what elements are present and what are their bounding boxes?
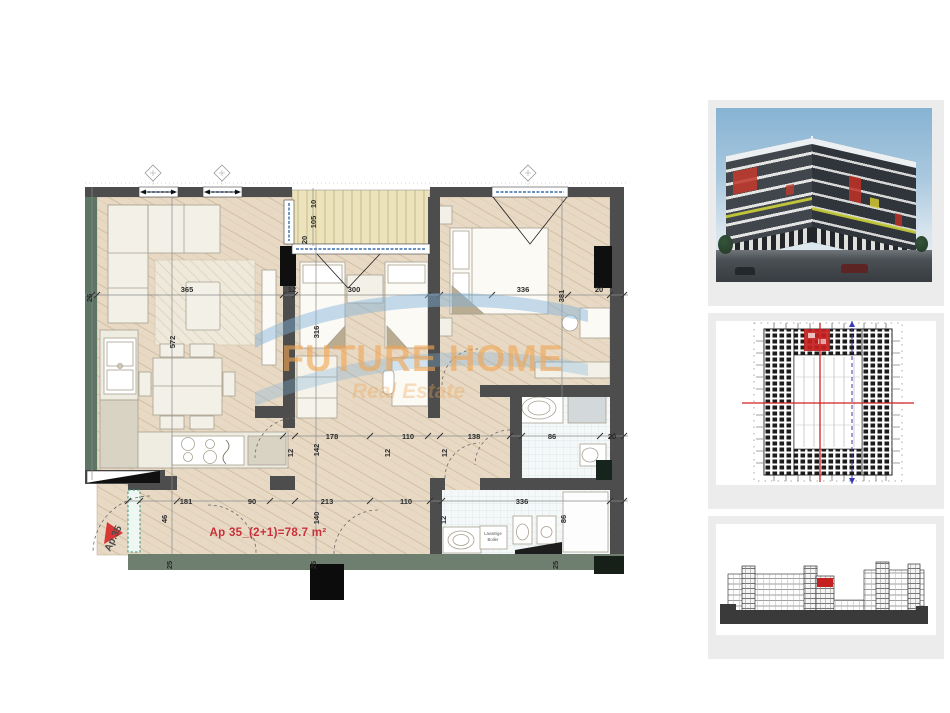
red-accent-panel — [733, 166, 757, 194]
left-wall — [85, 197, 97, 470]
building-3d-render-image — [716, 108, 932, 282]
dimension-label: 140 — [312, 512, 321, 525]
dimension-label: 20 — [595, 285, 603, 294]
bottom-wall — [128, 554, 624, 570]
right-building-block — [864, 562, 924, 614]
column — [594, 246, 612, 288]
dimension-label: 138 — [468, 432, 481, 441]
apartment-area-label: Ap 35_(2+1)=78.7 m² — [210, 527, 327, 539]
window-tag-diamonds — [145, 165, 536, 187]
dimension-label: 10 — [309, 200, 318, 208]
dimension-label: 12 — [288, 285, 296, 294]
dimension-label: 572 — [168, 336, 177, 349]
dimension-label: 178 — [326, 432, 339, 441]
roof-parapet — [726, 138, 812, 162]
car — [735, 267, 755, 275]
dimension-label: 25 — [309, 561, 318, 569]
dimension-label: 90 — [248, 497, 256, 506]
dimension-label: 12 — [286, 449, 295, 457]
floor-plan: Ap.35 2536512300336381205723161010520178… — [80, 160, 650, 620]
dimension-label: 381 — [557, 290, 566, 303]
street — [716, 250, 932, 282]
left-building-block — [728, 566, 864, 614]
building-left-facade — [726, 138, 812, 260]
highlighted-unit — [804, 329, 830, 351]
dimension-label: 336 — [516, 497, 529, 506]
wall-kids-master — [428, 197, 440, 418]
column — [594, 556, 624, 574]
dimension-label: 86 — [548, 432, 556, 441]
dimension-label: 365 — [181, 285, 194, 294]
boiler-label-line1: Lavatrige — [484, 531, 502, 536]
site-key-plan-drawing — [716, 321, 936, 485]
roof-parapet — [812, 138, 916, 168]
yellow-accent-panel — [870, 197, 878, 208]
building-right-facade — [812, 138, 916, 266]
dimension-label: 110 — [400, 497, 412, 506]
red-accent-panel — [849, 176, 860, 204]
dimension-label: 20 — [300, 236, 309, 244]
master-dresser — [535, 362, 610, 378]
kids-bed-right — [385, 262, 428, 348]
dimension-label: 12 — [440, 449, 449, 457]
dimension-label: 181 — [180, 497, 193, 506]
dimension-label: 25 — [85, 294, 94, 302]
building-elevation-drawing — [716, 524, 936, 635]
red-accent-panel — [895, 213, 902, 226]
dimension-label: 86 — [559, 515, 568, 523]
dimension-label: 110 — [402, 432, 414, 441]
thumbnail-building-render[interactable] — [708, 100, 944, 306]
right-wall — [610, 197, 624, 570]
dimension-label: 142 — [312, 444, 321, 457]
floor-plan-drawing: Ap.35 2536512300336381205723161010520178… — [80, 160, 650, 620]
boiler-label-line2: Boiler — [488, 537, 500, 542]
stove — [172, 436, 244, 465]
dimension-label: 316 — [312, 326, 321, 339]
thumbnail-elevation[interactable] — [708, 516, 944, 659]
dimension-label: 213 — [321, 497, 334, 506]
window-living-1 — [139, 187, 178, 197]
listing-image: Ap.35 2536512300336381205723161010520178… — [0, 0, 950, 713]
dimension-label: 336 — [517, 285, 530, 294]
dimension-label: 25 — [165, 561, 174, 569]
window-living-2 — [203, 187, 242, 197]
car — [841, 264, 868, 273]
dimension-label: 20 — [608, 432, 616, 441]
dimension-label: 300 — [348, 285, 361, 294]
dimension-label: 25 — [551, 561, 560, 569]
master-bed — [450, 228, 548, 314]
red-accent-panel — [786, 183, 794, 195]
kids-wardrobe — [297, 356, 337, 418]
wall-master-bath — [480, 385, 624, 397]
highlighted-unit — [817, 578, 833, 587]
dimension-label: 12 — [439, 516, 448, 524]
living-balcony-window — [284, 200, 294, 244]
dimension-label: 46 — [160, 515, 169, 523]
thumbnail-site-plan[interactable] — [708, 313, 944, 509]
tv-unit — [262, 270, 276, 365]
dimension-label: 105 — [309, 216, 318, 229]
thumbnail-column — [708, 100, 944, 666]
tree — [915, 236, 928, 252]
column — [596, 460, 612, 480]
yellow-accent-band — [726, 197, 812, 218]
dimension-label: 12 — [383, 449, 392, 457]
kids-bed-left — [300, 262, 345, 348]
